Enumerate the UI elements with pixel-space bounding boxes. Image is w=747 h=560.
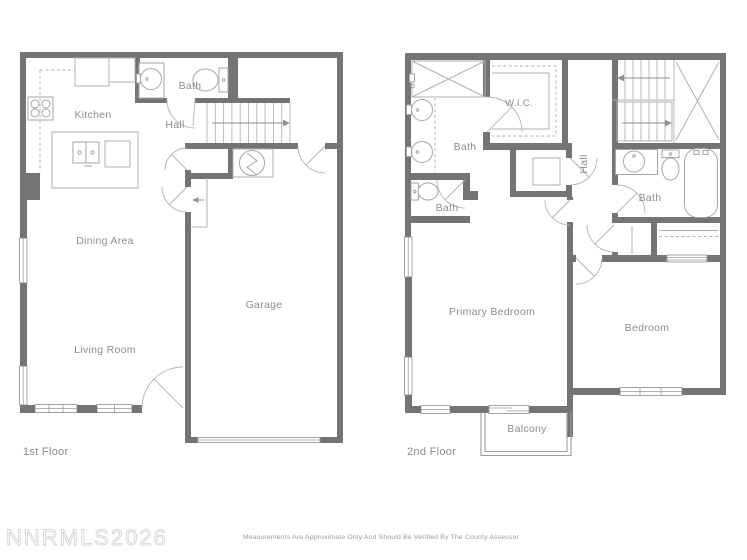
- room-label-living: Living Room: [74, 344, 136, 356]
- room-label-hall1: Hall: [165, 119, 184, 131]
- stairs-floor1: [207, 103, 290, 143]
- room-label-balcony: Balcony: [507, 423, 547, 435]
- floor1-walls: [20, 52, 343, 443]
- room-label-bath-hall: Bath: [639, 192, 662, 204]
- floorplan-image: Kitchen Bath Hall Dining Area Garage Liv…: [0, 0, 747, 560]
- footer: NNRMLS2026 Measurements Are Approximate …: [6, 525, 520, 550]
- room-label-bath-ensuite: Bath: [454, 141, 477, 153]
- floor2-walls: [405, 53, 726, 437]
- floor1-windows: [20, 238, 133, 413]
- room-label-dining: Dining Area: [76, 235, 134, 247]
- kitchen-counter: [40, 58, 138, 188]
- stairs-floor2: [612, 60, 719, 143]
- room-label-primary-bedroom: Primary Bedroom: [449, 306, 535, 318]
- hallbath-sink-icon: [616, 150, 658, 175]
- room-label-bath1: Bath: [179, 80, 202, 92]
- room-label-wic: W.I.C.: [505, 98, 533, 109]
- room-label-bath-toilet: Bath: [436, 202, 459, 214]
- garage-door: [198, 438, 320, 443]
- kitchen-sink-icon: [73, 142, 99, 166]
- room-label-hall2: Hall: [578, 154, 590, 173]
- floor2-title: 2nd Floor: [407, 446, 456, 458]
- room-label-garage: Garage: [246, 299, 283, 311]
- hallbath-toilet-icon: [662, 150, 679, 180]
- mls-watermark: NNRMLS2026: [6, 525, 168, 550]
- floor2-plan: W.I.C. Bath Bath Bath Hall Primary Bedro…: [405, 53, 727, 458]
- linen-closet: [533, 158, 560, 185]
- floor1-plan: Kitchen Bath Hall Dining Area Garage Liv…: [20, 52, 344, 458]
- bathtub-icon: [685, 149, 718, 218]
- stove-icon: [28, 97, 53, 120]
- disclaimer-text: Measurements Are Approximate Only And Sh…: [243, 534, 520, 541]
- shower-icon: [410, 61, 486, 97]
- understair-nook: [190, 178, 207, 227]
- room-label-bedroom: Bedroom: [625, 322, 670, 334]
- balcony-slider-door: [489, 406, 529, 414]
- toiletroom-toilet-icon: [411, 183, 438, 200]
- water-heater-icon: [233, 149, 273, 177]
- room-label-kitchen: Kitchen: [74, 109, 111, 121]
- bath1-sink-icon: [137, 63, 165, 98]
- floor1-title: 1st Floor: [23, 446, 69, 458]
